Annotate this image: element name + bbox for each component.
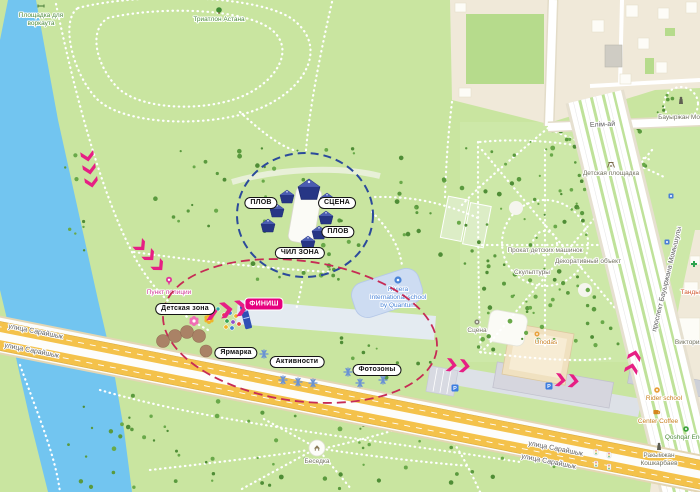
svg-text:P: P <box>453 386 457 392</box>
school-icon[interactable] <box>394 276 401 283</box>
base-map: P P Площадка для воркаута Триатлон Астан… <box>0 0 700 492</box>
poi-triathlon[interactable]: Триатлон Астана <box>193 16 245 23</box>
map-canvas[interactable]: P P Площадка для воркаута Триатлон Астан… <box>0 0 700 492</box>
zone-label-photo: Фотозоны <box>353 364 402 376</box>
path-circle <box>509 201 523 215</box>
poi-gazebo[interactable]: Беседка <box>305 458 330 465</box>
poi-monument-momyshuly[interactable]: Бауыржан Момышулы <box>658 114 700 121</box>
poi-unodas[interactable]: Unodas <box>535 339 558 346</box>
poi-victoria[interactable]: Виктория <box>675 339 700 346</box>
poi-center-coffee[interactable]: Center Coffee <box>638 418 679 425</box>
poi-decorative-object[interactable]: Декоративный объект <box>555 257 621 265</box>
transit-stop-icon[interactable] <box>669 194 674 199</box>
poi-sculptures[interactable]: Скульптуры <box>514 269 550 276</box>
parking-icon[interactable]: P <box>452 385 459 393</box>
poi-workout-line2[interactable]: воркаута <box>28 20 55 27</box>
poi-koshkarbaev-line1[interactable]: Ракымжан <box>643 452 675 459</box>
stage-poi-icon[interactable] <box>474 319 479 324</box>
poi-workout-line1[interactable]: Площадка для <box>19 12 64 19</box>
zone-label-activities: Активности <box>270 356 325 368</box>
street-yelim-ai: Елім-ай <box>590 120 616 129</box>
poi-playground[interactable]: Детская площадка <box>583 170 640 177</box>
poi-koshkarbaev-line2[interactable]: Кошкарбаев <box>640 459 678 467</box>
poi-stage[interactable]: Сцена <box>467 327 487 334</box>
zone-label-fair: Ярмарка <box>214 347 257 359</box>
svg-text:P: P <box>547 384 551 390</box>
rider-school-icon[interactable] <box>654 387 660 393</box>
poi-school-line3[interactable]: by Quantum <box>380 302 415 309</box>
zone-label-plov-left: ПЛОВ <box>244 197 277 209</box>
finish-label: ФИНИШ <box>244 298 283 311</box>
poi-school-line2[interactable]: International school <box>370 294 427 301</box>
parking-icon[interactable]: P <box>546 383 553 391</box>
zone-label-stage: СЦЕНА <box>318 197 356 209</box>
zone-label-kids: Детская зона <box>155 303 215 315</box>
poi-qoshqar-ene[interactable]: Qoshqar Ene <box>665 434 700 441</box>
poi-kids-car-rental[interactable]: Прокат детских машинок <box>508 247 583 254</box>
zone-label-chill: ЧИЛ ЗОНА <box>275 247 325 259</box>
poi-rider-school[interactable]: Rider school <box>646 395 683 402</box>
qoshqar-icon[interactable] <box>683 426 689 432</box>
zone-label-plov-right: ПЛОВ <box>321 226 354 238</box>
unodas-icon[interactable] <box>535 332 540 337</box>
poi-tandyr[interactable]: Тандыр <box>681 289 700 296</box>
transit-stop-icon[interactable] <box>665 240 670 245</box>
